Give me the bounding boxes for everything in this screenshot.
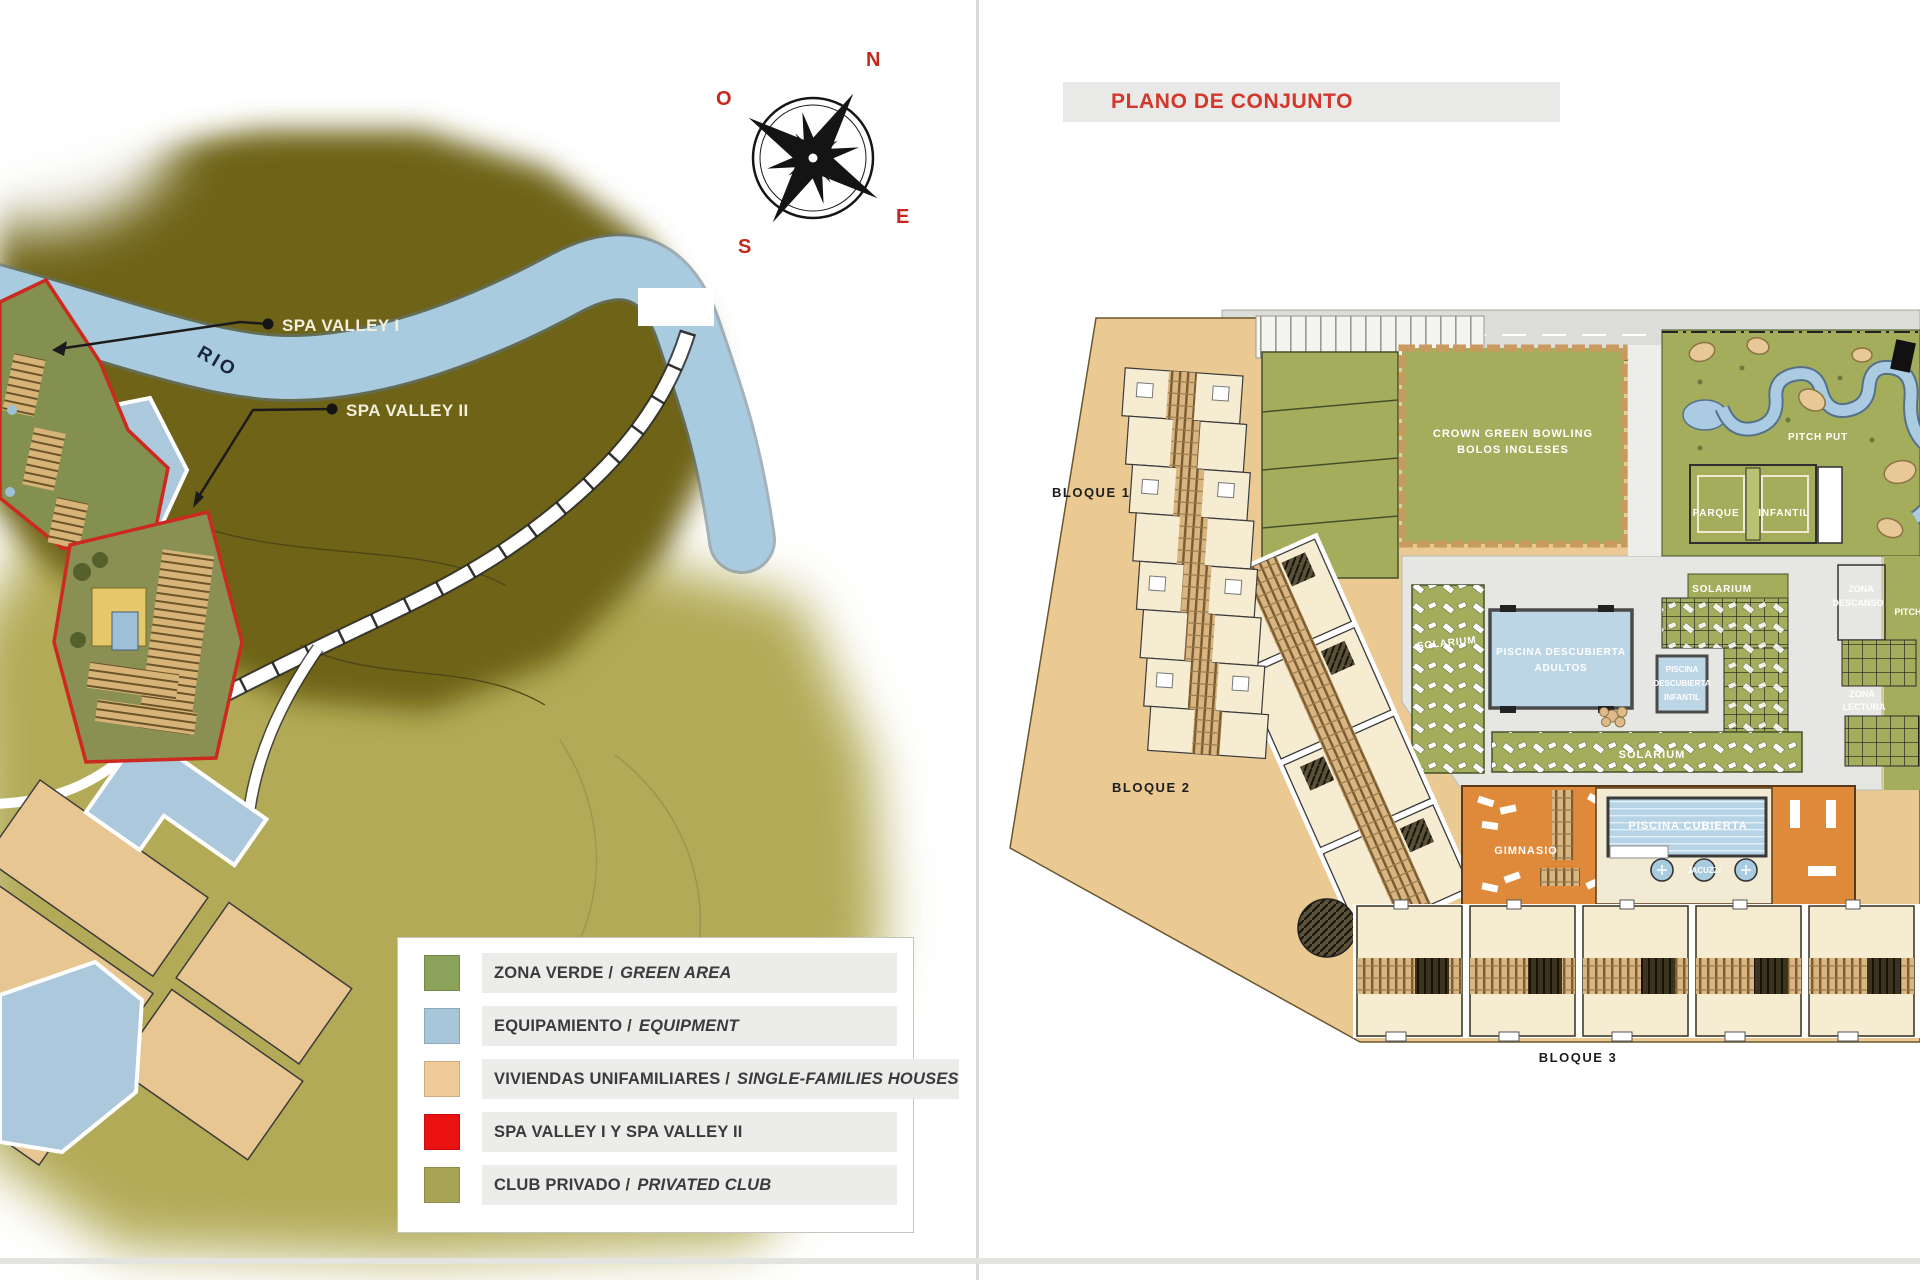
legend-label-en: EQUIPMENT — [639, 1017, 739, 1035]
blank-patch — [638, 288, 714, 326]
bowling-label-1: CROWN GREEN BOWLING — [1433, 428, 1593, 440]
green-strips — [1262, 352, 1398, 578]
solarium-north-label: SOLARIUM — [1692, 584, 1752, 595]
playground: PARQUE INFANTIL — [1690, 465, 1842, 543]
legend-swatch-red — [424, 1114, 460, 1150]
legend-swatch-green — [424, 955, 460, 991]
solarium-north: SOLARIUM — [1688, 574, 1788, 598]
leader-dot-icon — [327, 404, 338, 415]
descanso-label-2: DESCANSO — [1832, 598, 1883, 608]
legend-label-en: SINGLE-FAMILIES HOUSES — [737, 1070, 959, 1088]
compass-s: S — [738, 236, 751, 258]
lectura-label-1: ZONA — [1849, 689, 1875, 699]
legend-label: ZONA VERDE / — [494, 964, 613, 982]
pool-kids-label-1: PISCINA — [1666, 665, 1699, 674]
indoor-pool-label: PISCINA CUBIERTA — [1628, 820, 1747, 832]
legend-item-club-privado: CLUB PRIVADO /PRIVATED CLUB — [424, 1165, 897, 1205]
spa-valley-2-label: SPA VALLEY II — [346, 401, 469, 420]
bowling-label-2: BOLOS INGLESES — [1457, 444, 1569, 456]
pool-kids: PISCINA DESCUBIERTA INFANTIL — [1653, 656, 1710, 712]
solarium-west: SOLARIUM — [1412, 585, 1484, 773]
pitch-edge-label: PITCH — [1895, 607, 1920, 617]
legend-label-en: GREEN AREA — [620, 964, 731, 982]
legend-swatch-blue — [424, 1008, 460, 1044]
page-title: PLANO DE CONJUNTO — [1111, 82, 1353, 122]
pitch-put-label: PITCH PUT — [1788, 432, 1848, 443]
compass-o: O — [716, 88, 732, 110]
bloque-2-label: BLOQUE 2 — [1112, 780, 1190, 795]
pool-adults: PISCINA DESCUBIERTA ADULTOS — [1490, 605, 1632, 713]
legend-label: EQUIPAMIENTO / — [494, 1017, 632, 1035]
gym-label: GIMNASIO — [1494, 845, 1558, 857]
pool-kids-label-2: DESCUBIERTA — [1653, 679, 1710, 688]
pool-adults-label-1: PISCINA DESCUBIERTA — [1496, 647, 1626, 658]
legend-item-zona-verde: ZONA VERDE /GREEN AREA — [424, 953, 897, 993]
bloque-1-label: BLOQUE 1 — [1052, 485, 1130, 500]
plaza-path-bowling — [1628, 345, 1662, 556]
compass-rose-icon: N O E S — [708, 49, 917, 263]
legend-item-equipamiento: EQUIPAMIENTO /EQUIPMENT — [424, 1006, 897, 1046]
legend-label: CLUB PRIVADO / — [494, 1176, 630, 1194]
legend-label: VIVIENDAS UNIFAMILIARES / — [494, 1070, 730, 1088]
page-edge-shadow — [0, 1258, 1920, 1264]
legend-item-viviendas: VIVIENDAS UNIFAMILIARES /SINGLE-FAMILIES… — [424, 1059, 897, 1099]
legend-swatch-tan — [424, 1061, 460, 1097]
legend-label: SPA VALLEY I Y SPA VALLEY II — [494, 1123, 743, 1141]
leader-dot-icon — [263, 319, 274, 330]
legend-label-en: PRIVATED CLUB — [637, 1176, 771, 1194]
pool-adults-label-2: ADULTOS — [1534, 663, 1587, 674]
spa-building: GIMNASIO PISCINA CUBIERTA JACUZZI — [1462, 786, 1855, 906]
legend-swatch-olive — [424, 1167, 460, 1203]
compass-e: E — [896, 206, 909, 228]
playground-label-1: PARQUE — [1693, 508, 1740, 519]
bowling-green: CROWN GREEN BOWLING BOLOS INGLESES — [1402, 348, 1624, 544]
lectura-label-2: LECTURA — [1843, 702, 1886, 712]
page-title-band: PLANO DE CONJUNTO — [1063, 82, 1560, 122]
solarium-south-label: SOLARIUM — [1619, 749, 1686, 761]
compass-n: N — [866, 49, 880, 71]
map-legend: ZONA VERDE /GREEN AREA EQUIPAMIENTO /EQU… — [397, 937, 914, 1233]
bloque-3-label: BLOQUE 3 — [1539, 1050, 1617, 1065]
pool-kids-label-3: INFANTIL — [1664, 693, 1700, 702]
playground-label-2: INFANTIL — [1758, 508, 1809, 519]
jacuzzi-label: JACUZZI — [1687, 866, 1721, 875]
legend-item-spa-valley: SPA VALLEY I Y SPA VALLEY II — [424, 1112, 897, 1152]
spa-valley-2-parcel — [54, 512, 242, 762]
page-gutter — [976, 0, 979, 1280]
pitch-put-area: PITCH PUT PARQUE INFANTIL — [1662, 330, 1920, 556]
tree-icon — [1298, 899, 1356, 957]
brochure-spread: RIO SPA VALLEY I SPA VALLEY II — [0, 0, 1920, 1280]
spa-valley-1-label: SPA VALLEY I — [282, 316, 400, 335]
descanso-label-1: ZONA — [1848, 584, 1874, 594]
site-plan: CROWN GREEN BOWLING BOLOS INGLESES PITCH… — [978, 0, 1920, 1280]
